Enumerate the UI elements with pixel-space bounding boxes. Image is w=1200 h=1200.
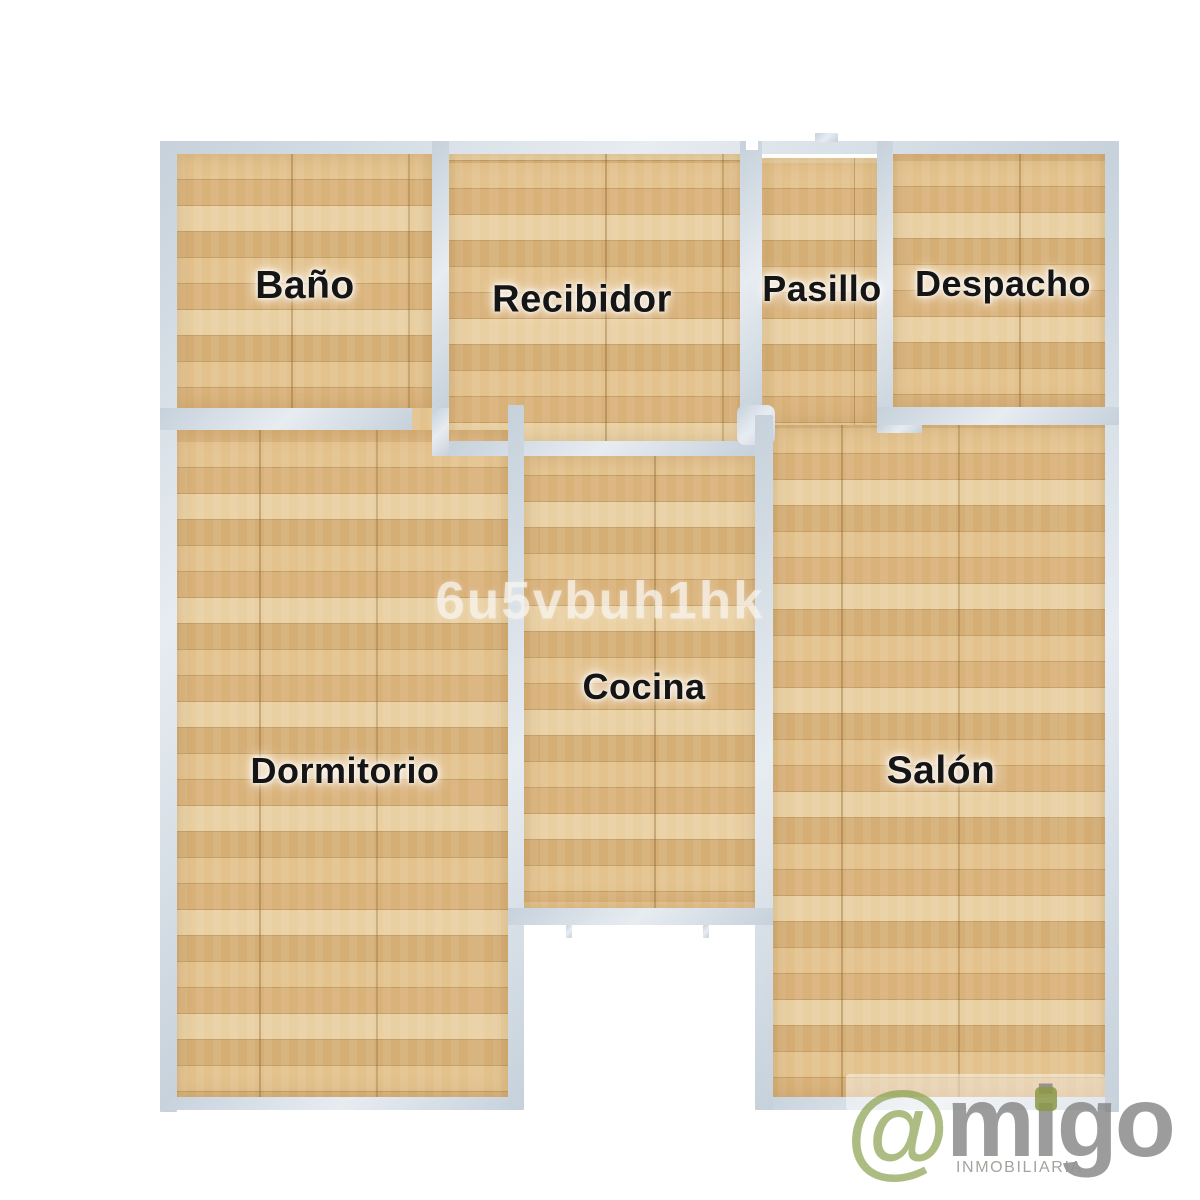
window-mark-top: [815, 133, 838, 142]
floorplan-page: Baño Recibidor Pasillo Despacho Dormitor…: [0, 0, 1200, 1200]
wall-top: [160, 141, 1119, 154]
logo-i-dot: [1035, 1087, 1057, 1111]
wall-recibidor-pasillo: [740, 141, 762, 415]
wall-cocina-bottom: [508, 908, 773, 925]
window-mark-cocina-2: [703, 925, 709, 938]
wall-bottom-left: [160, 1097, 523, 1110]
wall-bano-recibidor: [432, 141, 449, 408]
room-label-dormitorio: Dormitorio: [251, 750, 440, 792]
wall-recibidor-bottom: [449, 441, 755, 456]
room-label-bano: Baño: [255, 264, 355, 308]
room-label-recibidor: Recibidor: [492, 279, 672, 322]
room-label-cocina: Cocina: [582, 666, 705, 708]
window-mark-cocina-1: [566, 925, 572, 938]
logo-brand: migo: [946, 1072, 1173, 1172]
wall-right: [1105, 141, 1119, 1112]
door-opening-bano: [412, 408, 432, 430]
wall-despacho-step: [877, 425, 922, 433]
wall-door-jamb: [432, 408, 449, 456]
entrance-door-mark: [746, 141, 758, 150]
wall-despacho-bottom: [877, 407, 1119, 425]
logo-tagline: INMOBILIARIA: [956, 1160, 1083, 1176]
wall-cocina-right: [755, 415, 773, 1110]
wall-bano-bottom: [160, 408, 412, 430]
logo-at-icon: @: [846, 1076, 949, 1182]
wall-left: [160, 141, 177, 1112]
watermark-text: 6u5vbuh1hk: [435, 571, 764, 632]
room-label-salon: Salón: [887, 749, 996, 793]
room-label-despacho: Despacho: [915, 263, 1091, 305]
wall-cocina-left: [508, 405, 524, 1110]
room-label-pasillo: Pasillo: [762, 268, 882, 310]
